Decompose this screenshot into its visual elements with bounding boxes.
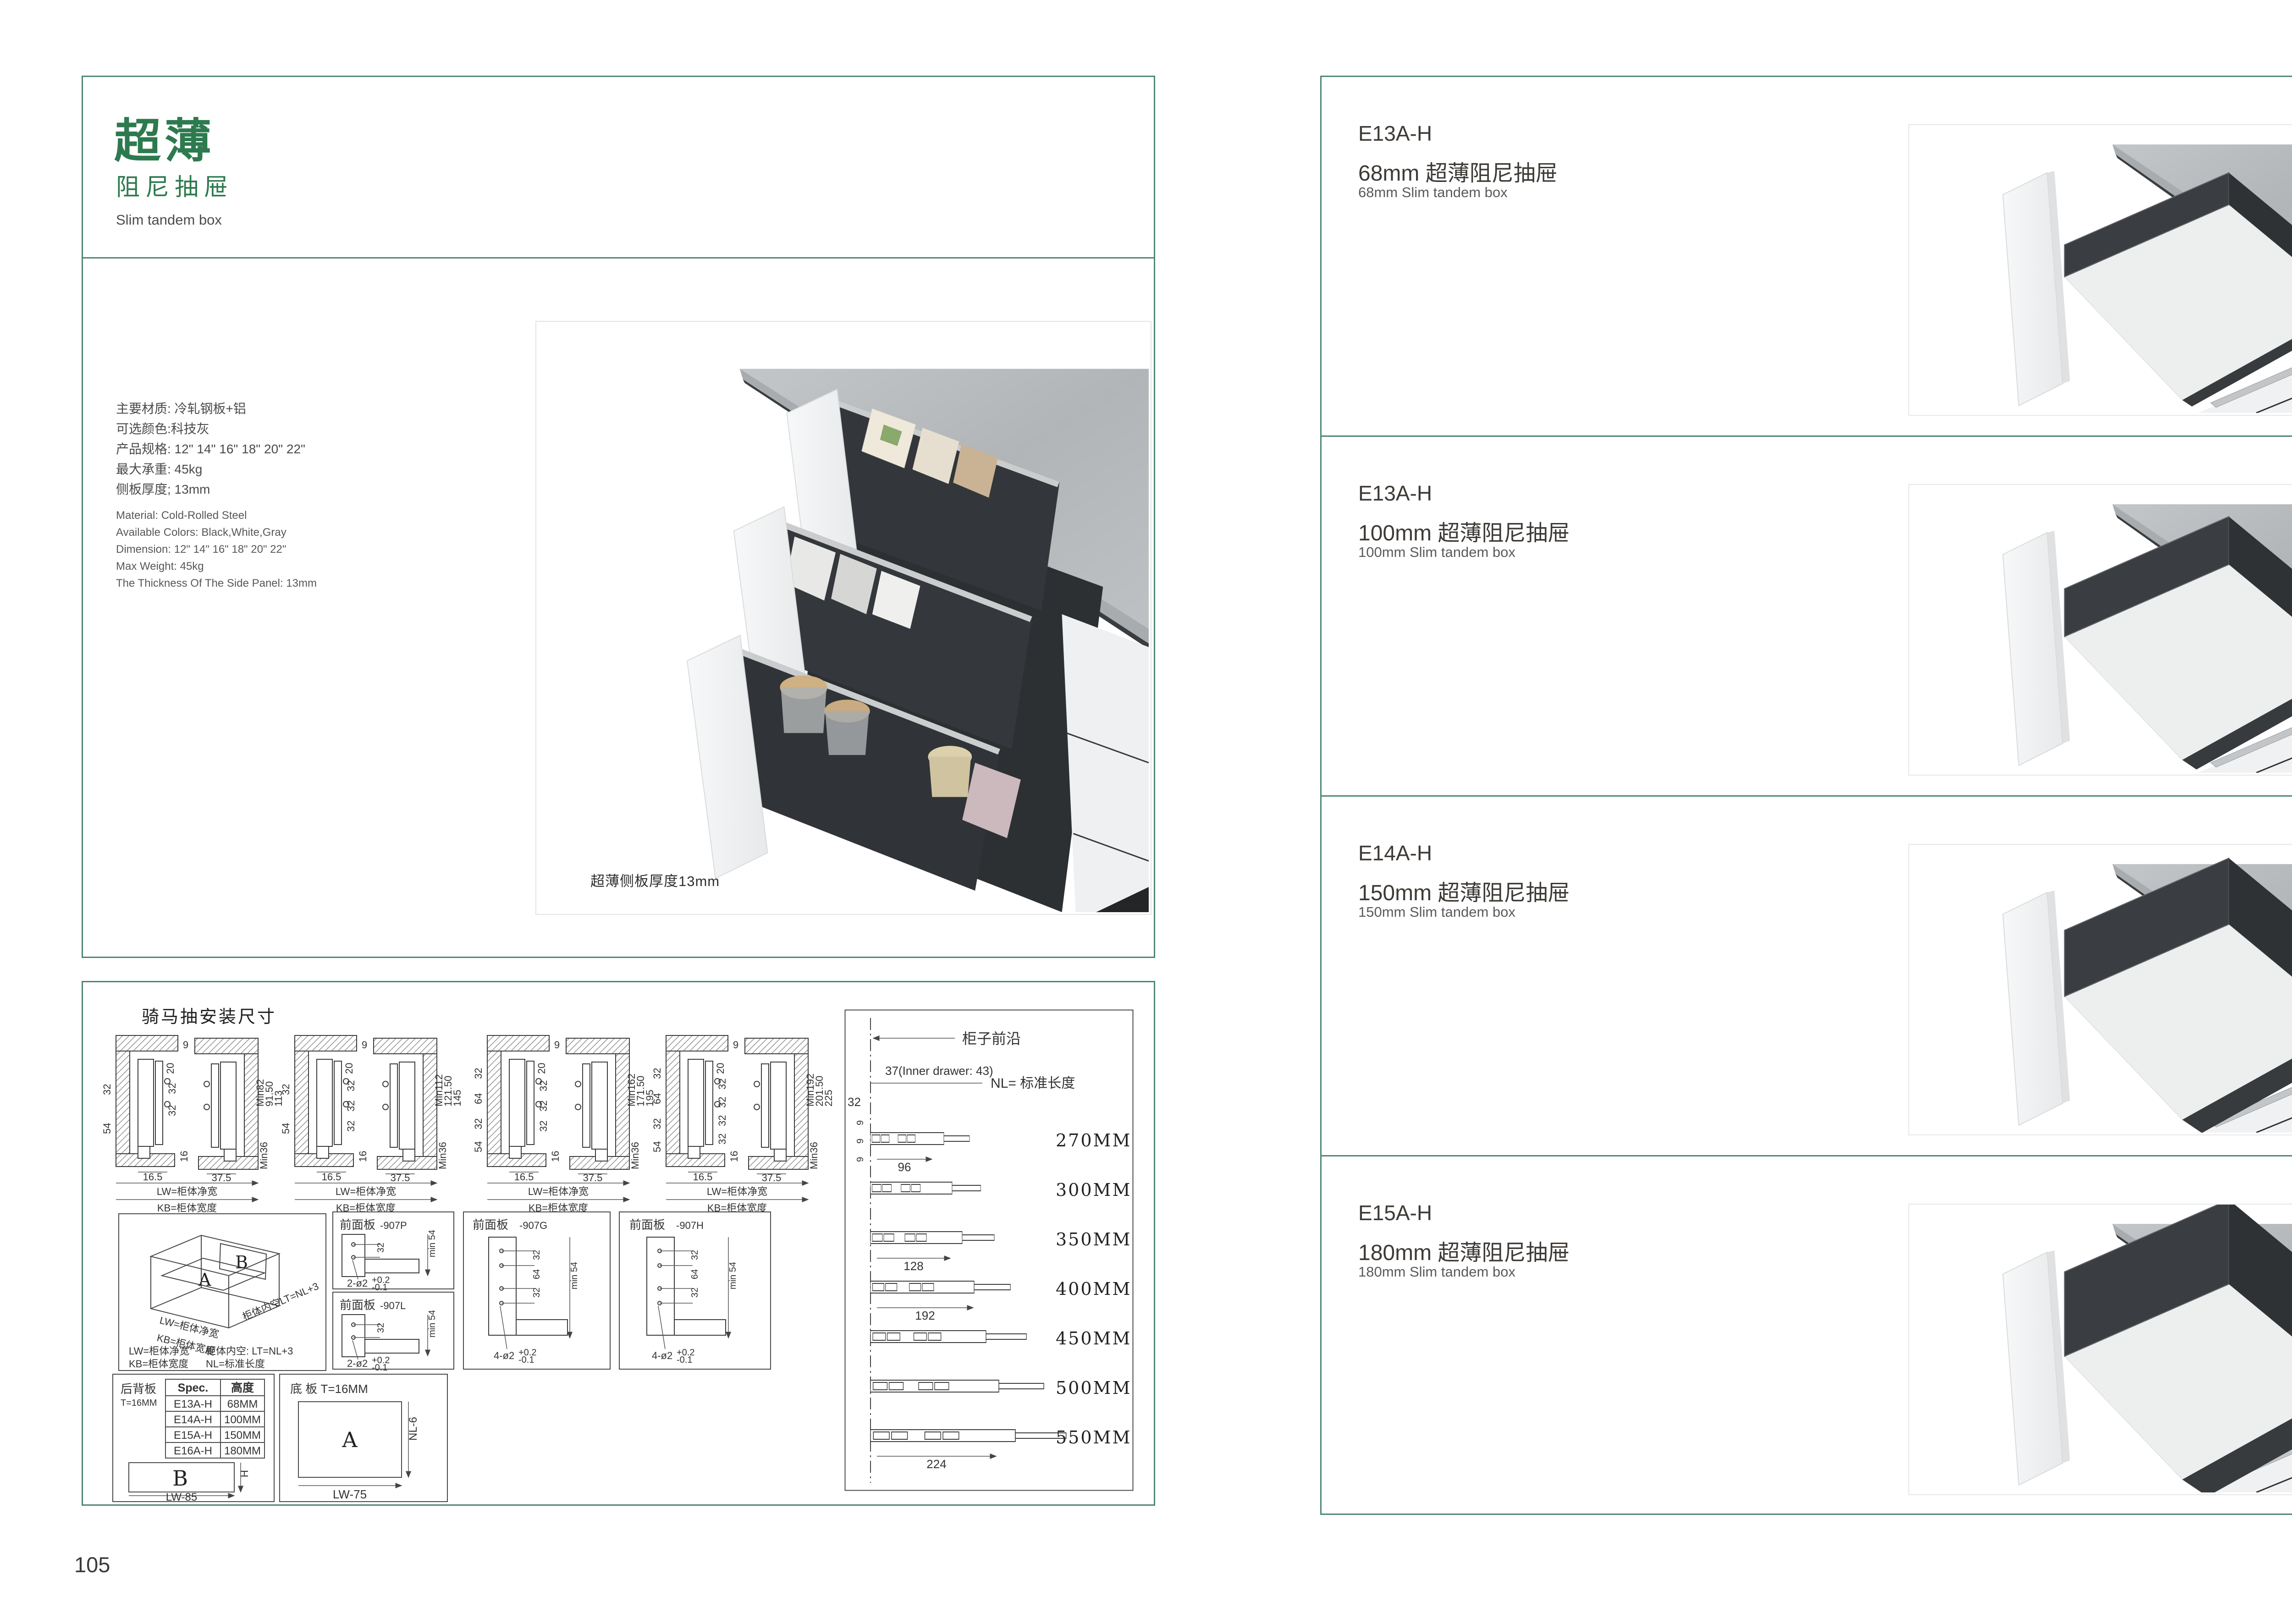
- svg-text:前面板-907H: 前面板-907H: [629, 1218, 704, 1232]
- front-panel-title: 前面板: [340, 1298, 375, 1312]
- dim-label: 32: [848, 1095, 861, 1109]
- nl-length: 500MM: [1056, 1378, 1131, 1398]
- dim-label: 32: [538, 1080, 549, 1091]
- dim-label: LW-75: [333, 1487, 367, 1501]
- pitch-label: 224: [926, 1457, 946, 1471]
- dim-label: 54: [101, 1123, 113, 1134]
- table-header-height: 高度: [231, 1381, 254, 1394]
- nl-length-panel: 柜子前沿 37(Inner drawer: 43) 32 9 9 9 NL= 标…: [845, 1010, 1133, 1491]
- dim-label: min 54: [728, 1262, 738, 1289]
- dim-label: 32: [716, 1097, 728, 1108]
- table-cell: 150MM: [224, 1429, 261, 1442]
- dim-label: 32: [376, 1323, 386, 1333]
- dim-label: 54: [473, 1141, 484, 1152]
- back-panel-thickness: T=16MM: [121, 1398, 157, 1408]
- front-panel-code: -907L: [380, 1300, 406, 1311]
- spec-line: Dimension: 12" 14" 16" 18" 20" 22": [116, 541, 317, 558]
- cabinet-width-label: LW=柜体净宽: [157, 1186, 217, 1197]
- dim-label: 20: [343, 1063, 355, 1074]
- iso-notes-line2: KB=柜体宽度NL=标准长度: [129, 1358, 265, 1370]
- dim-label: 16.5: [143, 1171, 163, 1183]
- bottom-panel-a-label: A: [342, 1427, 358, 1452]
- pitch-label: 128: [904, 1259, 923, 1273]
- hole-callout: 4-ø2: [494, 1350, 514, 1361]
- nl-standard-length-label: NL= 标准长度: [991, 1076, 1075, 1091]
- dim-label: 16: [357, 1151, 369, 1162]
- product-code: E14A-H: [1358, 841, 1432, 865]
- spec-line: 产品规格: 12" 14" 16" 18" 20" 22": [116, 439, 305, 459]
- dim-label: 20: [536, 1063, 547, 1074]
- bottom-panel-title: 底 板 T=16MM: [290, 1382, 368, 1396]
- hole-callout: 2-ø2: [347, 1277, 368, 1289]
- dim-label: 32: [376, 1243, 386, 1253]
- dim-label: 225: [823, 1090, 834, 1107]
- svg-text:前面板-907P: 前面板-907P: [340, 1218, 407, 1232]
- dim-label: 32: [101, 1084, 113, 1095]
- product-name-en: 180mm Slim tandem box: [1358, 1264, 1515, 1280]
- dim-label: 16: [550, 1151, 561, 1162]
- front-panel-907P: 前面板-907P 32 min 54 2-ø2 +0.2 -0.1: [333, 1212, 454, 1293]
- product-code: E13A-H: [1358, 121, 1432, 146]
- product-photo-68mm: [1908, 124, 2292, 416]
- dim-label: 32: [345, 1101, 357, 1112]
- product-name-en: 100mm Slim tandem box: [1358, 544, 1515, 561]
- dim-label: 32: [345, 1080, 357, 1091]
- dim-label: 9: [855, 1120, 865, 1125]
- hero-photo-caption: 超薄侧板厚度13mm: [590, 870, 720, 890]
- table-cell: E14A-H: [174, 1414, 212, 1426]
- dim-label: LW-85: [166, 1491, 197, 1503]
- product-name-cn: 180mm 超薄阻尼抽屉: [1358, 1234, 1570, 1266]
- dim-label: min 54: [427, 1310, 437, 1338]
- nl-length: 350MM: [1056, 1229, 1131, 1250]
- dim-label: 54: [651, 1141, 663, 1152]
- dim-label: min 54: [569, 1262, 579, 1289]
- spec-line: Available Colors: Black,White,Gray: [116, 524, 317, 541]
- tolerance-minus: -0.1: [518, 1355, 534, 1365]
- setback-label: 37(Inner drawer: 43): [885, 1064, 993, 1078]
- family-subtitle-cn: 阻尼抽屉: [116, 168, 233, 202]
- product-row-100mm: E13A-H 100mm 超薄阻尼抽屉 100mm Slim tandem bo…: [1322, 437, 2292, 797]
- table-header-spec: Spec.: [178, 1382, 209, 1394]
- catalog-spread: 超薄 阻尼抽屉 Slim tandem box 主要材质: 冷轧钢板+铝 可选颜…: [0, 0, 2292, 1624]
- spec-line: Material: Cold-Rolled Steel: [116, 507, 317, 524]
- dim-label: Min36: [437, 1142, 448, 1169]
- product-row-180mm: E15A-H 180mm 超薄阻尼抽屉 180mm Slim tandem bo…: [1322, 1156, 2292, 1516]
- product-code: E15A-H: [1358, 1200, 1432, 1225]
- dim-label: 9: [554, 1039, 560, 1051]
- spec-line: 侧板厚度; 13mm: [116, 479, 305, 500]
- cross-section-150: 9 20 32 32 32 16 32 64 32 54 Min162 171.…: [473, 1035, 656, 1214]
- product-name-cn: 150mm 超薄阻尼抽屉: [1358, 875, 1570, 907]
- dim-label: 37.5: [762, 1172, 782, 1184]
- iso-b-label: B: [235, 1252, 248, 1272]
- dim-label: 16.5: [514, 1171, 534, 1183]
- dim-label: 32: [538, 1121, 549, 1132]
- front-panel-title: 前面板: [340, 1218, 375, 1232]
- dim-label: 32: [166, 1083, 178, 1094]
- nl-length: 550MM: [1056, 1427, 1131, 1448]
- dim-label: 32: [716, 1115, 728, 1126]
- nl-length: 300MM: [1056, 1180, 1131, 1200]
- iso-lt-label: 柜体内空LT=NL+3: [241, 1280, 320, 1323]
- tolerance-minus: -0.1: [677, 1355, 692, 1365]
- front-panel-code: -907P: [380, 1220, 407, 1231]
- dim-label: min 54: [427, 1230, 437, 1257]
- dim-label: 32: [532, 1250, 542, 1260]
- iso-cabinet-diagram: B A LW=柜体净宽 KB=柜体宽度 柜体内空LT=NL+3 LW=柜体净宽柜…: [119, 1214, 326, 1371]
- cabinet-width-label: LW=柜体净宽: [336, 1186, 396, 1197]
- dim-label: 16.5: [693, 1171, 713, 1183]
- pitch-label: 192: [915, 1309, 935, 1322]
- back-panel-title: 后背板: [121, 1382, 156, 1396]
- product-name-en: 150mm Slim tandem box: [1358, 904, 1515, 920]
- product-name-cn: 68mm 超薄阻尼抽屉: [1358, 155, 1558, 187]
- svg-text:前面板-907L: 前面板-907L: [340, 1298, 406, 1312]
- table-cell: E13A-H: [174, 1398, 212, 1410]
- product-code: E13A-H: [1358, 481, 1432, 506]
- pitch-label: 96: [898, 1160, 911, 1174]
- back-panel-spec: 后背板 T=16MM Spec. 高度 E13A-H 68MM E14A-H 1…: [113, 1374, 274, 1503]
- dim-label: 64: [651, 1093, 663, 1104]
- installation-drawings: 骑马抽安装尺寸 9 20 32 32 16 32 54 Min82 91.50 …: [83, 982, 1154, 1504]
- family-title-cn: 超薄: [114, 104, 215, 171]
- front-panel-907H: 前面板-907H 32 64 32 min 54 4-ø2 +0.2 -: [619, 1212, 771, 1369]
- product-row-150mm: E14A-H 150mm 超薄阻尼抽屉 150mm Slim tandem bo…: [1322, 797, 2292, 1156]
- product-photo-180mm: [1908, 1204, 2292, 1495]
- product-row-68mm: E13A-H 68mm 超薄阻尼抽屉 68mm Slim tandem box: [1322, 77, 2292, 437]
- dim-label: 64: [690, 1269, 700, 1279]
- cross-section-100: 9 20 32 32 32 16 32 54 Min112 121.50 145…: [280, 1035, 463, 1214]
- nl-length: 270MM: [1056, 1130, 1131, 1151]
- dim-label: 37.5: [212, 1172, 231, 1184]
- cabinet-width-label: KB=柜体宽度: [157, 1202, 217, 1214]
- dim-label: 9: [855, 1139, 865, 1144]
- hero-photo: 超薄侧板厚度13mm: [535, 321, 1152, 915]
- dim-label: Min36: [808, 1142, 820, 1169]
- front-panel-907G: 前面板-907G 32 64 32 min 54 4-ø2 +0.2 -: [463, 1212, 610, 1369]
- page-number-left: 105: [74, 1552, 110, 1577]
- svg-text:前面板-907G: 前面板-907G: [473, 1218, 547, 1232]
- dim-label: 9: [733, 1039, 738, 1051]
- table-cell: E16A-H: [174, 1445, 212, 1457]
- dim-label: 9: [183, 1039, 188, 1051]
- spec-line: 可选颜色:科技灰: [116, 419, 305, 439]
- spec-line: 主要材质: 冷轧钢板+铝: [116, 399, 305, 419]
- dim-label: 37.5: [391, 1172, 410, 1184]
- dim-label: 145: [452, 1090, 463, 1107]
- product-photo-150mm: [1908, 844, 2292, 1135]
- spec-table: Spec. 高度 E13A-H 68MM E14A-H 100MM E15A-H…: [165, 1379, 264, 1458]
- dim-label: 16.5: [322, 1171, 342, 1183]
- dim-label: 64: [473, 1093, 484, 1104]
- product-family-header: 超薄 阻尼抽屉 Slim tandem box: [83, 77, 1154, 259]
- table-cell: 68MM: [227, 1398, 258, 1410]
- dim-label: 32: [690, 1288, 700, 1298]
- product-photo-100mm: [1908, 484, 2292, 776]
- right-page-products-box: E13A-H 68mm 超薄阻尼抽屉 68mm Slim tandem box …: [1320, 76, 2292, 1515]
- installation-drawings-box: 骑马抽安装尺寸 9 20 32 32 16 32 54 Min82 91.50 …: [82, 981, 1155, 1506]
- tolerance-minus: -0.1: [372, 1283, 387, 1293]
- iso-notes-line1: LW=柜体净宽柜体内空: LT=NL+3: [129, 1345, 293, 1357]
- dim-label: 32: [473, 1118, 484, 1129]
- dim-label: 32: [166, 1105, 178, 1116]
- dim-label: 37.5: [583, 1172, 603, 1184]
- dim-label: 32: [651, 1118, 663, 1129]
- spec-list-cn: 主要材质: 冷轧钢板+铝 可选颜色:科技灰 产品规格: 12" 14" 16" …: [116, 399, 305, 500]
- hole-callout: 2-ø2: [347, 1358, 368, 1369]
- cabinet-front-edge-label: 柜子前沿: [962, 1030, 1021, 1047]
- left-page-main-box: 超薄 阻尼抽屉 Slim tandem box 主要材质: 冷轧钢板+铝 可选颜…: [82, 76, 1155, 958]
- dim-label: 32: [345, 1121, 357, 1132]
- family-subtitle-en: Slim tandem box: [116, 212, 222, 228]
- dim-label: 16: [178, 1151, 190, 1162]
- dim-label: Min36: [258, 1142, 270, 1169]
- nl-length: 400MM: [1056, 1279, 1131, 1299]
- dim-label: NL-6: [407, 1417, 419, 1441]
- dim-label: 32: [690, 1250, 700, 1260]
- back-panel-b-label: B: [172, 1466, 188, 1491]
- dim-label: Min36: [629, 1142, 641, 1169]
- dim-label: 9: [362, 1039, 367, 1051]
- cross-section-68: 9 20 32 32 16 32 54 Min82 91.50 113 Min3…: [101, 1035, 284, 1214]
- cross-section-180: 9 20 32 32 32 32 16 32 64 32 54 Min192 2…: [651, 1035, 834, 1214]
- spec-line: 最大承重: 45kg: [116, 459, 305, 479]
- front-panel-907L: 前面板-907L 32 min 54 2-ø2 +0.2 -0.1: [333, 1292, 454, 1373]
- iso-a-label: A: [198, 1270, 211, 1290]
- cabinet-width-label: LW=柜体净宽: [528, 1186, 589, 1197]
- product-name-en: 68mm Slim tandem box: [1358, 184, 1508, 201]
- cabinet-width-label: LW=柜体净宽: [707, 1186, 767, 1197]
- spec-line: The Thickness Of The Side Panel: 13mm: [116, 575, 317, 592]
- table-cell: 100MM: [224, 1414, 261, 1426]
- dim-label: 20: [715, 1063, 726, 1074]
- drawings-header: 骑马抽安装尺寸: [142, 1007, 276, 1027]
- tolerance-minus: -0.1: [372, 1363, 387, 1373]
- dim-label: 32: [716, 1134, 728, 1145]
- spec-list-en: Material: Cold-Rolled Steel Available Co…: [116, 507, 317, 592]
- table-cell: 180MM: [224, 1445, 261, 1457]
- front-panel-title: 前面板: [629, 1218, 665, 1232]
- dim-label: 16: [728, 1151, 740, 1162]
- product-name-cn: 100mm 超薄阻尼抽屉: [1358, 515, 1570, 547]
- dim-label: 64: [532, 1269, 542, 1279]
- bottom-panel-diagram: 底 板 T=16MM A NL-6 LW-75: [280, 1374, 447, 1502]
- front-panel-title: 前面板: [473, 1218, 508, 1232]
- dim-label: 20: [165, 1063, 176, 1074]
- dim-label: 32: [716, 1079, 728, 1090]
- spec-line: Max Weight: 45kg: [116, 558, 317, 575]
- hole-callout: 4-ø2: [652, 1350, 672, 1361]
- dim-label: 32: [280, 1084, 292, 1095]
- dim-label: 32: [473, 1068, 484, 1079]
- front-panel-code: -907H: [676, 1220, 704, 1231]
- front-panel-code: -907G: [519, 1220, 547, 1231]
- dim-label: 32: [538, 1101, 549, 1112]
- dim-label: 9: [855, 1157, 865, 1162]
- dim-label: 32: [532, 1288, 542, 1298]
- nl-length: 450MM: [1056, 1328, 1131, 1349]
- table-cell: E15A-H: [174, 1429, 212, 1442]
- dim-label: 54: [280, 1123, 292, 1134]
- dim-label: 32: [651, 1068, 663, 1079]
- hero-photo-render: [536, 322, 1149, 912]
- dim-label: H: [239, 1470, 250, 1477]
